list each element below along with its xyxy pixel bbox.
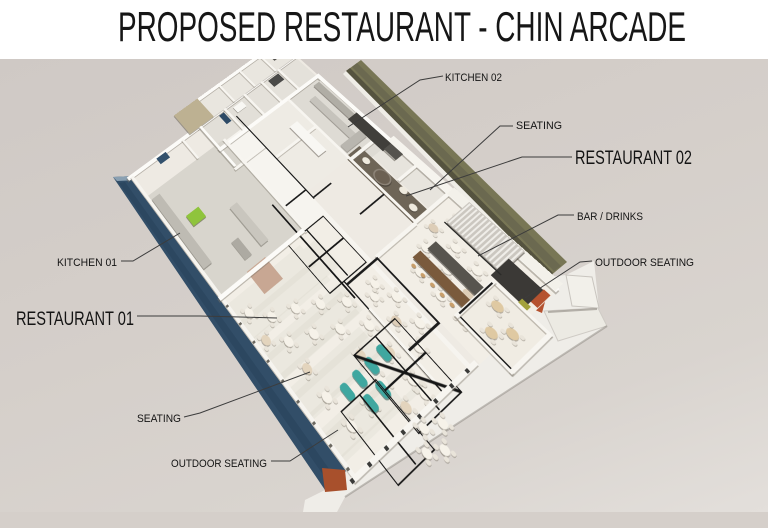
svg-text:BAR / DRINKS: BAR / DRINKS — [577, 211, 643, 223]
svg-text:OUTDOOR SEATING: OUTDOOR SEATING — [595, 257, 694, 269]
svg-text:KITCHEN 01: KITCHEN 01 — [57, 257, 117, 269]
svg-text:OUTDOOR SEATING: OUTDOOR SEATING — [171, 458, 267, 470]
svg-text:RESTAURANT 02: RESTAURANT 02 — [575, 147, 692, 169]
svg-text:KITCHEN 02: KITCHEN 02 — [445, 72, 502, 84]
svg-text:RESTAURANT 01: RESTAURANT 01 — [16, 308, 134, 330]
svg-text:SEATING: SEATING — [516, 120, 562, 132]
svg-text:SEATING: SEATING — [137, 413, 181, 425]
